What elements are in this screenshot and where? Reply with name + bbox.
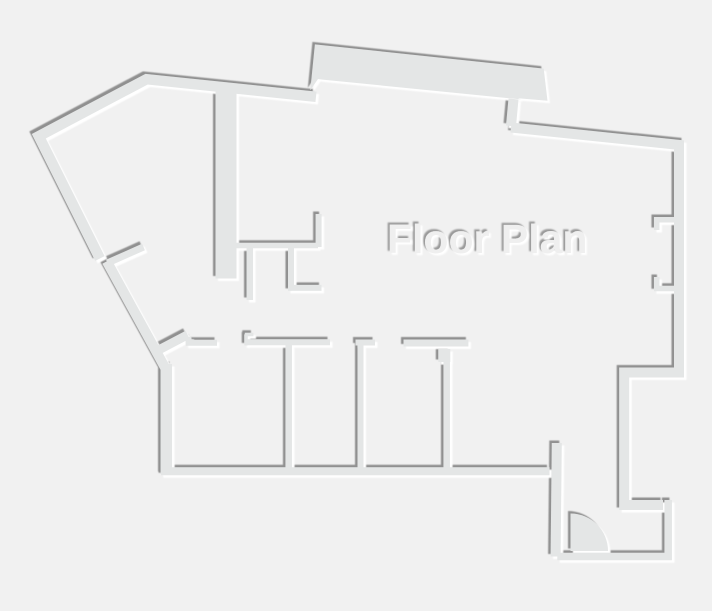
svg-text:Floor Plan: Floor Plan: [387, 216, 587, 262]
